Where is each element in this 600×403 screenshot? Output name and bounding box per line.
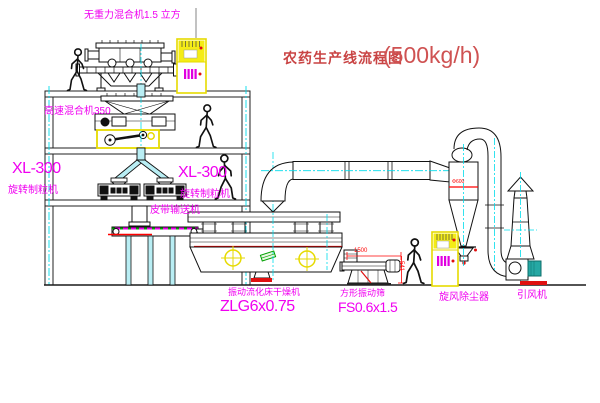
gravity-free-mixer	[76, 40, 177, 91]
label-cyclone: 旋风除尘器	[439, 293, 489, 303]
control-cabinet-dryer	[432, 232, 458, 286]
person-second-floor	[197, 105, 216, 147]
label-granulator-center-name: 旋转制粒机	[180, 190, 230, 200]
granulator-left	[98, 182, 140, 200]
label-high-speed-mixer: 高速混合机350	[44, 107, 111, 117]
belt-conveyor	[108, 227, 198, 285]
diagram-title-capacity: (500kg/h)	[383, 44, 480, 67]
dimension-screen-height: 541	[398, 261, 404, 271]
person-ground-floor	[404, 239, 424, 284]
label-fan: 引风机	[517, 291, 547, 301]
label-dryer-model: ZLG6x0.75	[220, 299, 295, 315]
label-belt-conveyor: 皮带输送机	[150, 206, 200, 216]
label-granulator-center-model: XL-300	[178, 165, 227, 181]
label-gravity-mixer: 无重力混合机1.5 立方	[84, 11, 181, 21]
exhaust-duct	[261, 161, 452, 201]
label-granulator-left-model: XL-300	[12, 161, 61, 177]
dimension-screen-length: 1500	[354, 248, 367, 254]
label-screen-model: FS0.6x1.5	[338, 300, 397, 314]
granulator-discharge-pipe	[129, 206, 150, 226]
label-granulator-left-name: 旋转制粒机	[8, 186, 58, 196]
high-speed-mixer	[95, 93, 175, 148]
label-screen-name: 方形振动筛	[340, 289, 385, 298]
control-cabinet-top	[177, 39, 206, 93]
vibrating-screen	[340, 250, 400, 286]
label-dryer-name: 振动流化床干燥机	[228, 288, 300, 297]
induced-draft-fan	[506, 259, 547, 285]
dimension-cyclone-diameter: Φ600	[452, 180, 464, 185]
process-flow-diagram: 无重力混合机1.5 立方 农药生产线流程图 (500kg/h) 高速混合机350…	[0, 0, 600, 403]
